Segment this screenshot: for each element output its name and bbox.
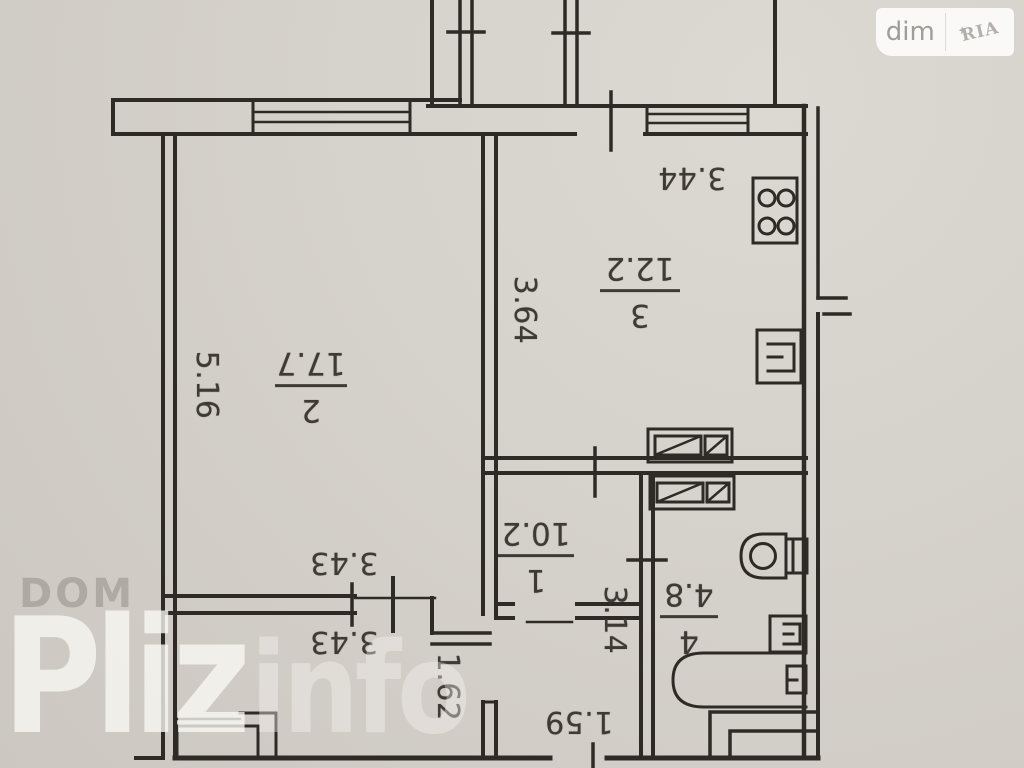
dim-ria-watermark: dim ★ RIA bbox=[876, 8, 1014, 56]
dim-logo-text: dim bbox=[876, 17, 945, 47]
bathtub-icon bbox=[673, 653, 806, 707]
dim-entry-width: 1.59 bbox=[545, 706, 614, 736]
hall-cabinet-icon bbox=[650, 476, 734, 509]
room-area: 17.7 bbox=[275, 345, 347, 381]
room-label-living-room: 2 17.7 bbox=[275, 345, 347, 427]
room-number: 2 bbox=[275, 392, 347, 428]
ria-logo: ★ RIA bbox=[946, 22, 1015, 42]
window-kitchen bbox=[647, 106, 748, 134]
dim-kitchen-width: 3.44 bbox=[658, 162, 727, 192]
room-area: 12.2 bbox=[600, 250, 680, 286]
fraction-bar bbox=[275, 385, 347, 388]
floor-plan-photo: 3 12.2 2 17.7 1 10.2 4 4.8 3.44 3.64 5.1… bbox=[0, 0, 1024, 768]
room-number: 3 bbox=[600, 297, 680, 333]
pliz-info-watermark: Pliz info bbox=[2, 597, 466, 757]
dim-living-width: 3.43 bbox=[310, 547, 379, 577]
info-watermark-text: info bbox=[250, 626, 466, 752]
dim-kitchen-depth: 3.64 bbox=[509, 276, 539, 345]
stove-icon bbox=[753, 178, 797, 243]
dim-corridor-depth: 3.14 bbox=[599, 586, 629, 655]
fraction-bar bbox=[600, 290, 680, 293]
fraction-bar bbox=[498, 555, 574, 558]
room-label-kitchen: 3 12.2 bbox=[600, 250, 680, 332]
toilet-icon bbox=[741, 534, 807, 578]
room-area: 10.2 bbox=[498, 515, 574, 551]
room-label-bathroom: 4 4.8 bbox=[660, 576, 718, 658]
dim-living-depth: 5.16 bbox=[191, 351, 221, 420]
room-number: 4 bbox=[660, 623, 718, 659]
room-area: 4.8 bbox=[660, 576, 718, 612]
room-label-room1: 1 10.2 bbox=[498, 515, 574, 597]
fraction-bar bbox=[660, 616, 718, 619]
pliz-watermark-text: Pliz bbox=[2, 597, 243, 757]
room-number: 1 bbox=[498, 562, 574, 598]
washbasin-icon bbox=[770, 616, 806, 652]
window-living-room bbox=[253, 100, 410, 134]
kitchen-sink-icon bbox=[757, 330, 801, 383]
